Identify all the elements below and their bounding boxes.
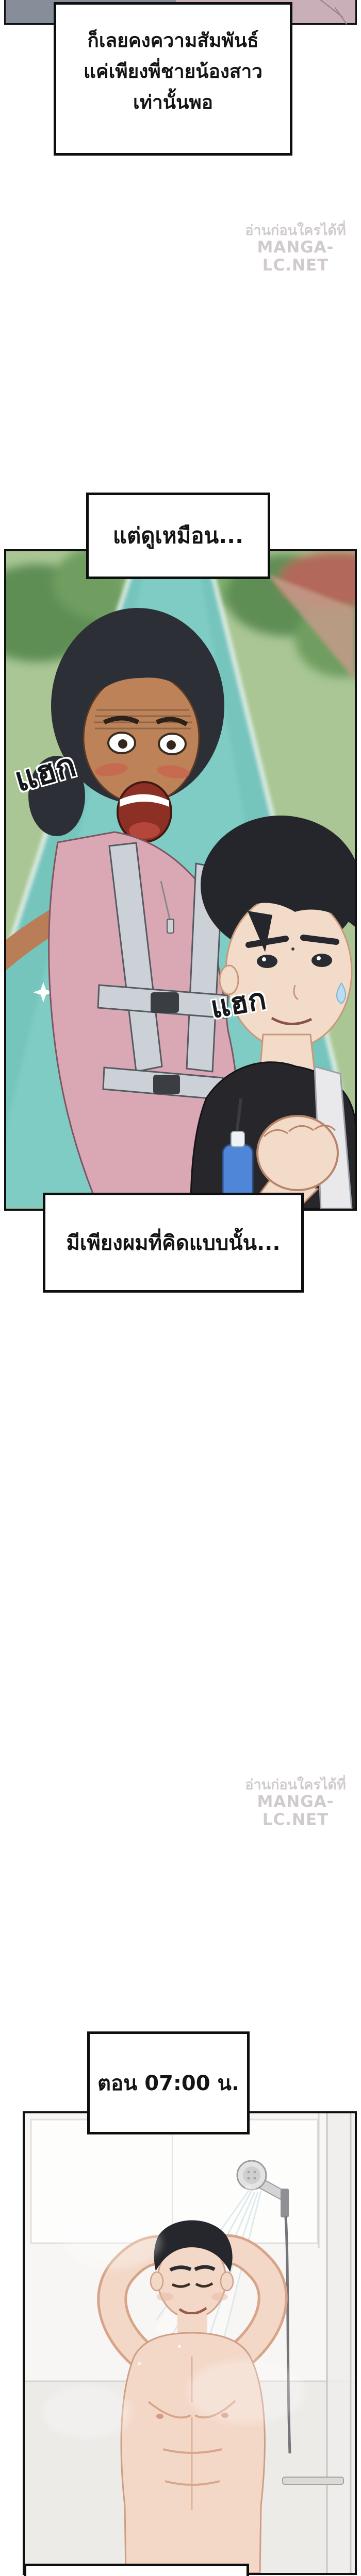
man-brow bbox=[303, 938, 336, 942]
bottle-cap bbox=[231, 1131, 244, 1147]
sfx-pant-2: แฮก bbox=[207, 974, 270, 1031]
crack-line bbox=[335, 7, 348, 25]
site-watermark: อ่านก่อนใครได้ที่ MANGA-LC.NET bbox=[231, 1777, 360, 1829]
man-eye bbox=[257, 955, 277, 968]
narration-line: ก็เลยคงความสัมพันธ์ bbox=[87, 25, 258, 56]
zipper-pendant bbox=[167, 919, 174, 933]
narration-line: มีเพียงผมที่คิดแบบนั้น... bbox=[66, 1226, 280, 1259]
panel-park-running bbox=[4, 549, 357, 1211]
narration-line: แต่ดูเหมือน... bbox=[113, 519, 243, 553]
strap-buckle bbox=[153, 1075, 180, 1094]
narration-box-5: พอกลับมาจากการวิ่ง ผมก็ใช้ช่วงเวลานี้ อา… bbox=[24, 2564, 249, 2576]
watermark-text: MANGA-LC.NET bbox=[231, 239, 360, 274]
narration-line: ตอน 07:00 น. bbox=[97, 2066, 239, 2099]
panel-shower bbox=[23, 2111, 357, 2575]
watermark-text: อ่านก่อนใครได้ที่ bbox=[231, 223, 360, 239]
mole bbox=[291, 947, 294, 951]
narration-line: เท่านั้นพอ bbox=[133, 87, 213, 118]
site-watermark: อ่านก่อนใครได้ที่ MANGA-LC.NET bbox=[231, 223, 360, 275]
narration-box-time: ตอน 07:00 น. bbox=[87, 2031, 250, 2134]
watermark-text: อ่านก่อนใครได้ที่ bbox=[231, 1777, 360, 1793]
narration-box-1: ก็เลยคงความสัมพันธ์ แค่เพียงพี่ชายน้องสา… bbox=[54, 2, 292, 156]
park-scene bbox=[6, 551, 355, 1209]
narration-box-2: แต่ดูเหมือน... bbox=[86, 493, 270, 579]
man-eye bbox=[311, 954, 332, 967]
watermark-text: MANGA-LC.NET bbox=[231, 1793, 360, 1828]
narration-line: แค่เพียงพี่ชายน้องสาว bbox=[84, 56, 262, 87]
soap-shelf bbox=[283, 2477, 343, 2484]
shower-scene bbox=[25, 2113, 355, 2573]
narration-box-3: มีเพียงผมที่คิดแบบนั้น... bbox=[43, 1193, 304, 1293]
webtoon-page: ก็เลยคงความสัมพันธ์ แค่เพียงพี่ชายน้องสา… bbox=[0, 0, 361, 2576]
strap-buckle bbox=[151, 992, 179, 1013]
